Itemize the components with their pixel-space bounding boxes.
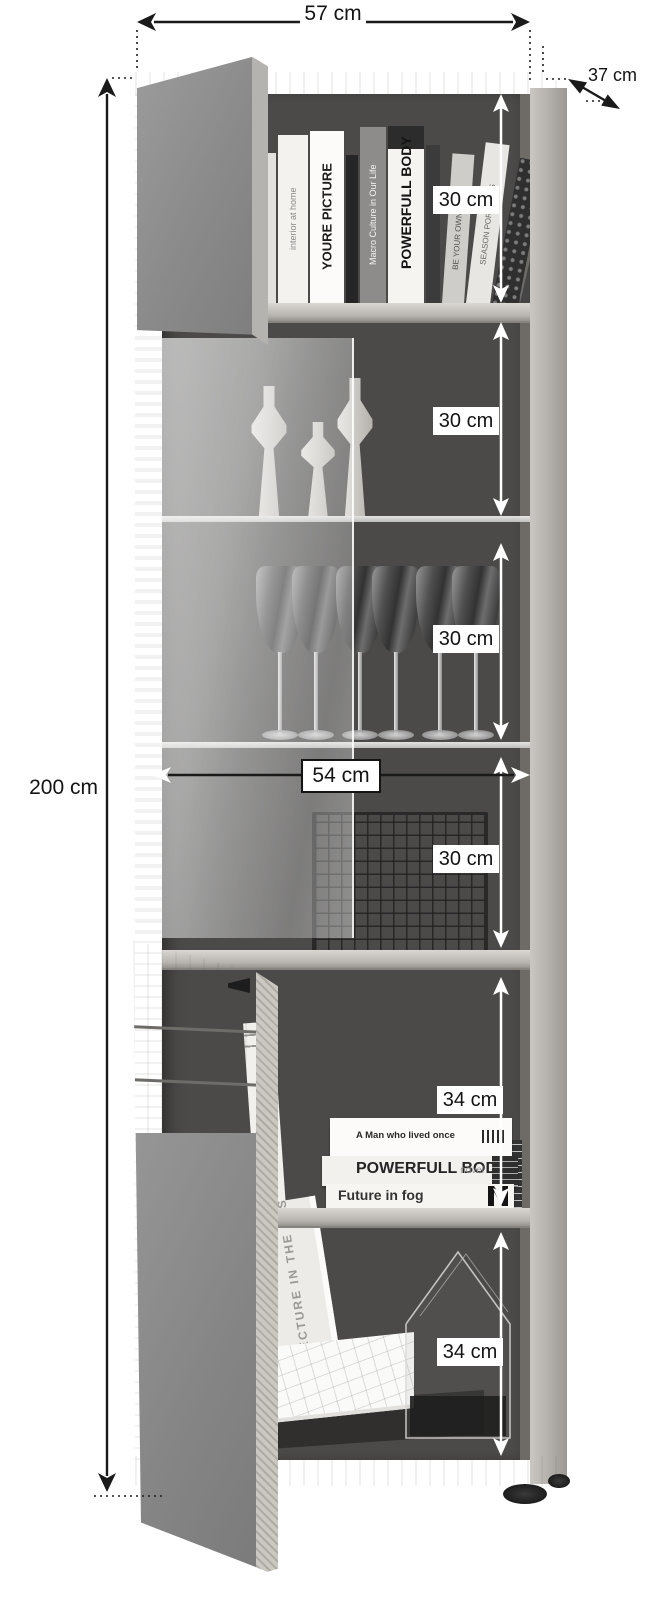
bottom-door-gray-section (133, 1133, 268, 1575)
bottom-door-edge (256, 967, 278, 1575)
glass-door-stile (135, 338, 162, 938)
book-spine: YOURE PICTURE (310, 131, 344, 303)
book-title: A Man who lived once (356, 1130, 455, 1141)
top-door-front (137, 50, 252, 348)
wine-glass (452, 566, 500, 746)
wine-glass-foot (378, 730, 414, 740)
book-title: POWERFULL BODY (356, 1160, 508, 1178)
book-spine: interior at home (278, 135, 308, 303)
wine-glass-foot (458, 730, 494, 740)
stacked-book-2: POWERFULL BODY novel (322, 1156, 518, 1186)
label-shelf-height-1: 30 cm (433, 186, 499, 214)
stacked-book-3: Future in fog (326, 1184, 514, 1210)
book-spine: Macro Culture in Our Life (360, 127, 386, 303)
book-title: POWERFULL BODY (388, 126, 424, 303)
book-spine (426, 145, 440, 303)
cabinet-right-side-panel (530, 88, 567, 1484)
book-title: Macro Culture in Our Life (360, 127, 386, 303)
bottom-door-open (133, 935, 278, 1575)
label-shelf-height-3: 30 cm (433, 625, 499, 653)
publisher-logo-icon (488, 1186, 508, 1206)
cabinet-foot-front (503, 1484, 547, 1504)
label-inner-width: 54 cm (301, 759, 381, 793)
book-spine: POWERFULL BODY (388, 126, 424, 303)
wine-glass (372, 566, 420, 746)
wine-glass-stem (438, 652, 442, 734)
top-door-edge (252, 50, 268, 348)
furniture-dimension-diagram: interior at home YOURE PICTURE Macro Cul… (0, 0, 667, 1600)
book-title: Future in fog (338, 1187, 424, 1203)
top-books-row: interior at home YOURE PICTURE Macro Cul… (260, 126, 530, 303)
label-shelf-height-5: 34 cm (437, 1086, 503, 1114)
barcode-icon (482, 1130, 504, 1143)
label-overall-height: 200 cm (14, 774, 98, 802)
label-shelf-height-6: 34 cm (437, 1338, 503, 1366)
book-end-band (492, 1156, 518, 1186)
wine-glass-stem (358, 652, 362, 734)
book-subtitle: novel (460, 1165, 484, 1176)
label-shelf-height-4: 30 cm (433, 845, 499, 873)
label-shelf-height-2: 30 cm (433, 407, 499, 435)
label-overall-width: 57 cm (300, 0, 366, 28)
top-door-open (137, 50, 268, 348)
storage-box (262, 1332, 414, 1424)
book-spine (346, 155, 358, 303)
wine-glass-stem (474, 652, 478, 734)
label-overall-depth: 37 cm (588, 64, 637, 86)
book-title: interior at home (278, 135, 308, 303)
wine-glass-stem (394, 652, 398, 734)
stacked-book-1: A Man who lived once (330, 1118, 512, 1158)
book-title: YOURE PICTURE (310, 131, 344, 303)
wine-glass-bowl (372, 566, 420, 654)
glass-door-pane (162, 338, 354, 938)
